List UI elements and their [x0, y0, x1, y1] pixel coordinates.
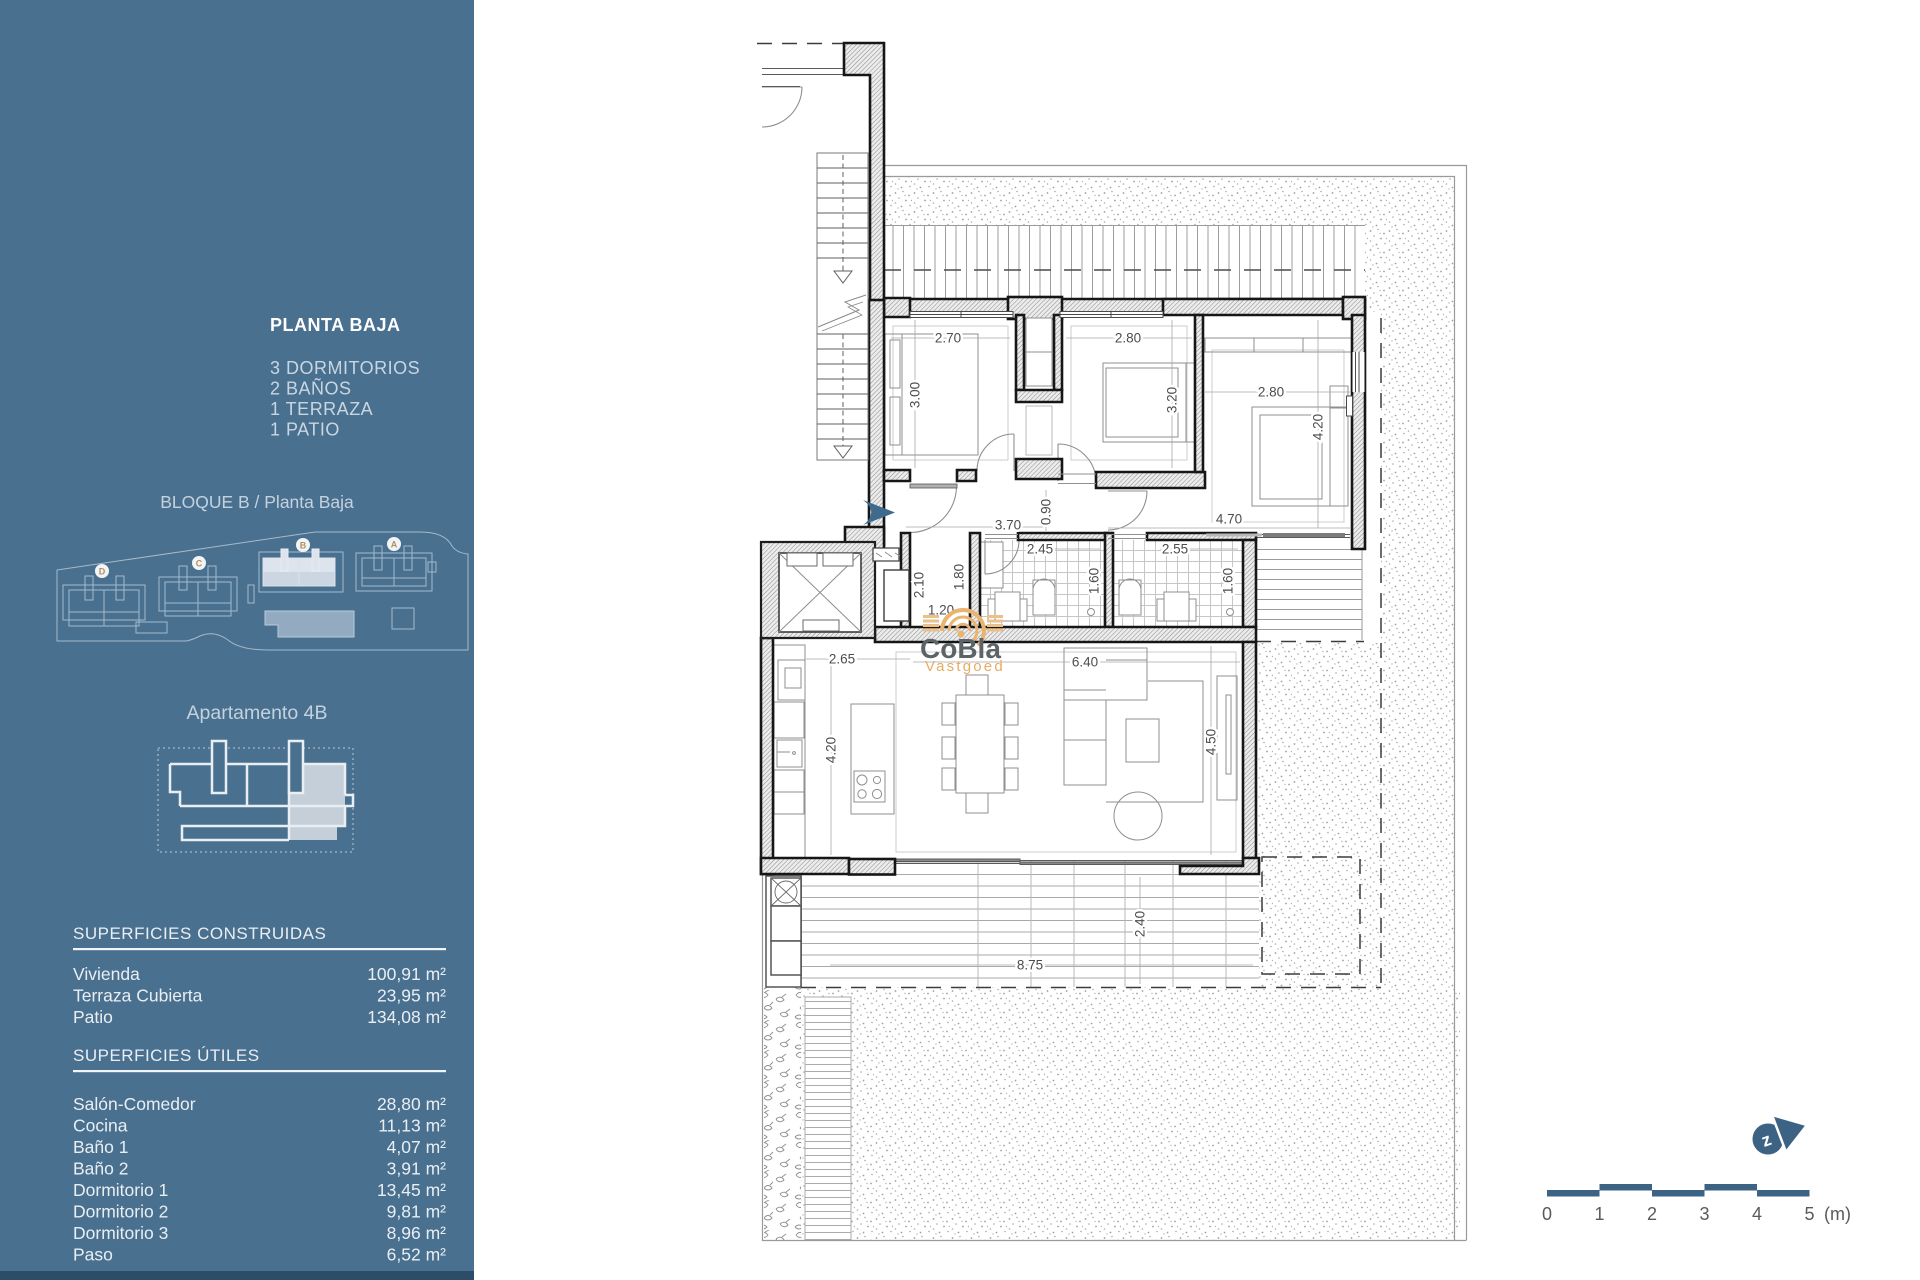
svg-text:28,80 m²: 28,80 m²: [377, 1094, 446, 1114]
svg-text:Cocina: Cocina: [73, 1116, 128, 1136]
svg-text:2.80: 2.80: [1258, 385, 1284, 400]
svg-text:Dormitorio 2: Dormitorio 2: [73, 1202, 168, 1222]
svg-text:4.20: 4.20: [824, 737, 839, 763]
svg-text:Paso: Paso: [73, 1245, 113, 1265]
svg-text:Apartamento 4B: Apartamento 4B: [187, 702, 328, 724]
svg-text:2.80: 2.80: [1115, 331, 1141, 346]
svg-text:6,52 m²: 6,52 m²: [387, 1245, 446, 1265]
svg-text:2.55: 2.55: [1162, 542, 1188, 557]
svg-text:D: D: [99, 567, 106, 577]
svg-text:4.20: 4.20: [1311, 414, 1326, 440]
svg-text:11,13 m²: 11,13 m²: [378, 1116, 446, 1136]
svg-text:6.40: 6.40: [1072, 655, 1098, 670]
svg-text:3.00: 3.00: [908, 382, 923, 408]
svg-text:2.10: 2.10: [912, 572, 927, 598]
svg-text:100,91 m²: 100,91 m²: [367, 964, 446, 984]
svg-text:1.60: 1.60: [1087, 568, 1102, 594]
svg-text:23,95 m²: 23,95 m²: [377, 986, 446, 1006]
svg-text:0: 0: [1542, 1204, 1552, 1224]
svg-text:2.65: 2.65: [829, 652, 855, 667]
svg-text:(m): (m): [1824, 1204, 1851, 1224]
svg-text:0.90: 0.90: [1039, 499, 1054, 525]
svg-text:5: 5: [1804, 1204, 1814, 1224]
svg-text:4.70: 4.70: [1216, 512, 1242, 527]
svg-text:2.70: 2.70: [935, 331, 961, 346]
svg-text:3 DORMITORIOS: 3 DORMITORIOS: [270, 358, 420, 378]
svg-text:Dormitorio 3: Dormitorio 3: [73, 1223, 168, 1243]
svg-text:B: B: [300, 541, 307, 551]
svg-text:4,07 m²: 4,07 m²: [387, 1137, 446, 1157]
svg-text:2 BAÑOS: 2 BAÑOS: [270, 378, 352, 399]
svg-text:134,08 m²: 134,08 m²: [367, 1007, 446, 1027]
svg-text:Baño 1: Baño 1: [73, 1137, 128, 1157]
svg-text:8.75: 8.75: [1017, 958, 1043, 973]
svg-text:3,91 m²: 3,91 m²: [387, 1159, 446, 1179]
svg-text:Terraza Cubierta: Terraza Cubierta: [73, 986, 203, 1006]
svg-text:1: 1: [1594, 1204, 1604, 1224]
svg-text:Vastgoed: Vastgoed: [925, 658, 1005, 675]
svg-text:13,45 m²: 13,45 m²: [377, 1180, 446, 1200]
svg-text:SUPERFICIES ÚTILES: SUPERFICIES ÚTILES: [73, 1046, 260, 1065]
svg-text:8,96 m²: 8,96 m²: [387, 1223, 446, 1243]
svg-text:SUPERFICIES CONSTRUIDAS: SUPERFICIES CONSTRUIDAS: [73, 924, 326, 943]
svg-text:Salón-Comedor: Salón-Comedor: [73, 1094, 196, 1114]
svg-text:1 PATIO: 1 PATIO: [270, 420, 340, 440]
svg-text:9,81 m²: 9,81 m²: [387, 1202, 446, 1222]
svg-text:3: 3: [1699, 1204, 1709, 1224]
svg-text:Patio: Patio: [73, 1007, 113, 1027]
svg-text:Vivienda: Vivienda: [73, 964, 140, 984]
svg-text:4.50: 4.50: [1204, 729, 1219, 755]
svg-text:C: C: [196, 559, 203, 569]
svg-text:Baño 2: Baño 2: [73, 1159, 128, 1179]
svg-text:1 TERRAZA: 1 TERRAZA: [270, 399, 373, 419]
svg-text:A: A: [391, 540, 398, 550]
svg-text:Dormitorio 1: Dormitorio 1: [73, 1180, 168, 1200]
svg-text:2.40: 2.40: [1133, 911, 1148, 937]
svg-text:2.45: 2.45: [1027, 542, 1053, 557]
svg-text:3.20: 3.20: [1165, 387, 1180, 413]
svg-text:3.70: 3.70: [995, 518, 1021, 533]
svg-text:1.60: 1.60: [1221, 568, 1236, 594]
svg-text:BLOQUE B / Planta Baja: BLOQUE B / Planta Baja: [160, 492, 354, 512]
svg-text:PLANTA BAJA: PLANTA BAJA: [270, 315, 401, 335]
svg-text:4: 4: [1752, 1204, 1762, 1224]
svg-text:1.80: 1.80: [952, 564, 967, 590]
svg-text:2: 2: [1647, 1204, 1657, 1224]
